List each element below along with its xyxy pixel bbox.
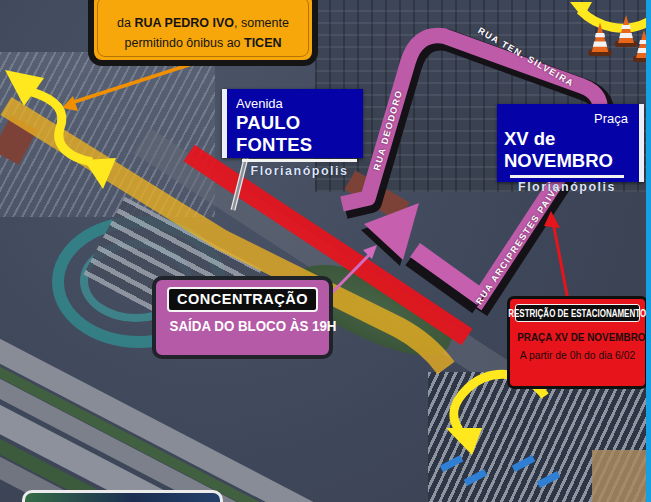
restriction-header: RESTRIÇÃO DE ESTACIONAMENTO bbox=[515, 304, 640, 322]
concentration-box: CONCENTRAÇÃO SAÍDA DO BLOCO ÀS 19H bbox=[152, 276, 333, 359]
sign-city: Florianópolis bbox=[236, 164, 363, 178]
notice-line-2: permitindo ônibus ao TICEN bbox=[124, 34, 281, 53]
red-callout-line bbox=[553, 222, 568, 300]
sign-road-type: Avenida bbox=[236, 96, 363, 111]
street-sign-praca-xv: Praça XV de NOVEMBRO Florianópolis bbox=[497, 104, 644, 182]
yellow-hook-arrow-head bbox=[446, 428, 482, 455]
sign-city: Florianópolis bbox=[504, 180, 630, 194]
parking-restriction-box: RESTRIÇÃO DE ESTACIONAMENTO PRAÇA XV DE … bbox=[507, 296, 648, 389]
street-sign-paulo-fontes: Avenida PAULO FONTES Florianópolis bbox=[222, 89, 363, 158]
carnival-road-closure-map: RUA DEODORO RUA TEN. SILVEIRA RUA ARCIPR… bbox=[0, 0, 651, 502]
restriction-place: PRAÇA XV DE NOVEMBRO bbox=[517, 331, 645, 343]
bus-notice-box: da RUA PEDRO IVO, somente permitindo ôni… bbox=[88, 0, 318, 66]
restriction-detail: A partir de 0h do dia 6/02 bbox=[520, 349, 636, 361]
sign-road-type: Praça bbox=[504, 111, 630, 126]
orange-callout-arrowhead bbox=[62, 96, 78, 111]
sign-divider bbox=[510, 175, 624, 178]
sign-road-name: PAULO FONTES bbox=[236, 112, 363, 156]
inset-box-partial bbox=[22, 490, 223, 502]
sign-road-name: XV de NOVEMBRO bbox=[504, 128, 630, 172]
sign-divider bbox=[242, 159, 357, 162]
concentration-subtitle: SAÍDA DO BLOCO ÀS 19H bbox=[170, 317, 337, 335]
notice-line-1: da RUA PEDRO IVO, somente bbox=[117, 14, 289, 33]
concentration-title: CONCENTRAÇÃO bbox=[167, 287, 318, 312]
poster-edge-strip bbox=[646, 0, 651, 502]
yellow-arrow-top-right-body bbox=[580, 10, 648, 28]
